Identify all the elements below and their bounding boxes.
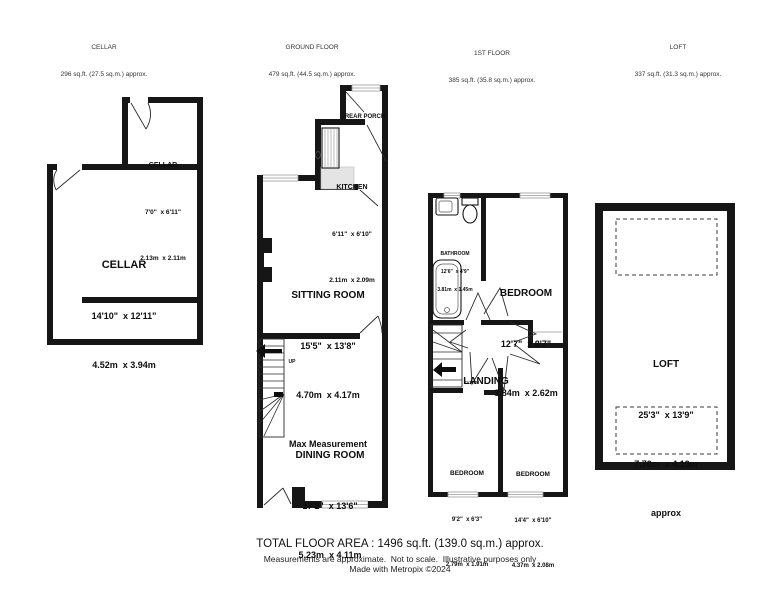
room-name: BEDROOM [512,471,554,479]
room-name: BATHROOM [437,251,472,257]
header-cellar-area: 296 sq.ft. (27.5 sq.m.) approx. [61,70,148,79]
header-loft-title: LOFT [635,43,722,52]
cellar-doors [54,103,151,190]
room-metric: 7.70m x 4.19m [634,459,698,470]
room-name: CELLAR [92,259,157,272]
room-name: KITCHEN [329,184,375,192]
cellar-main-label: CELLAR 14'10" x 12'11" 4.52m x 3.94m [92,221,157,409]
room-imperial: 12'7" x 8'7" [494,339,558,350]
room-metric: 4.52m x 3.94m [92,360,157,371]
room-name: BEDROOM [446,470,488,478]
room-imperial: 12'6" x 4'9" [437,269,472,275]
room-name: LOFT [634,359,698,371]
room-metric: 3.81m x 1.45m [437,287,472,293]
room-name: REAR PORCH [345,114,385,121]
header-loft-area: 337 sq.ft. (31.3 sq.m.) approx. [635,70,722,79]
ground-stairs [256,339,284,437]
room-imperial: 14'4" x 6'10" [512,518,554,525]
room-name: CELLAR [140,162,186,170]
room-imperial: 17'2" x 13'6" [296,501,365,512]
floorplan-page: CELLAR 296 sq.ft. (27.5 sq.m.) approx. G… [0,0,782,600]
header-loft: LOFT 337 sq.ft. (31.3 sq.m.) approx. [635,25,722,98]
room-imperial: 14'10" x 12'11" [92,311,157,322]
down-arrow-icon [433,362,442,377]
room-imperial: 9'2" x 6'3" [446,517,488,524]
header-first: 1ST FLOOR 385 sq.ft. (35.8 sq.m.) approx… [449,31,536,104]
room-note: approx [634,508,698,519]
room-imperial: 6'11" x 6'10" [329,231,375,239]
room-name: DINING ROOM [296,450,365,462]
down-text: DOWN [465,380,479,385]
room-imperial: 25'3" x 13'9" [634,410,698,421]
loft-label: LOFT 25'3" x 13'9" 7.70m x 4.19m approx [634,321,698,557]
stairs-up-label: UP [289,347,296,377]
room-metric: 4.70m x 4.17m [289,390,367,401]
total-floor-area: TOTAL FLOOR AREA : 1496 sq.ft. (139.0 sq… [256,538,543,550]
header-cellar-title: CELLAR [61,43,148,52]
first-stairs [431,325,462,387]
room-name: BEDROOM [494,288,558,300]
bedroom-middle-label: BEDROOM 9'2" x 6'3" 2.79m x 1.91m [446,432,488,600]
stairs-down-label: DOWN [465,369,479,396]
header-first-area: 385 sq.ft. (35.8 sq.m.) approx. [449,76,536,85]
bedroom-front-label: BEDROOM 14'4" x 6'10" 4.37m x 2.08m [512,433,554,600]
up-text: UP [289,359,296,365]
footer-disclaimer: Measurements are approximate. Not to sca… [264,554,537,564]
bathroom-label: BATHROOM 12'6" x 4'9" 3.81m x 1.45m [437,239,472,305]
room-metric: 4.37m x 2.08m [512,563,554,570]
footer-credit: Made with Metropix ©2024 [349,564,450,574]
room-name: SITTING ROOM [289,290,367,302]
rear-porch-label: REAR PORCH [345,100,385,136]
room-imperial: 7'0" x 6'11" [140,209,186,217]
header-ground-title: GROUND FLOOR [269,43,356,52]
header-first-title: 1ST FLOOR [449,49,536,58]
room-imperial: 15'5" x 13'8" [289,341,367,352]
